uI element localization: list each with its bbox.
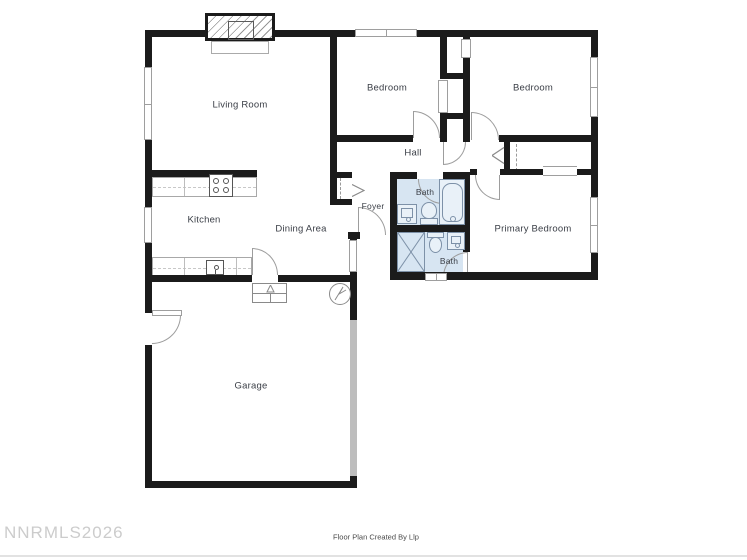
door-swing (152, 315, 181, 344)
room-label-bedroom-right: Bedroom (513, 83, 553, 94)
door-leaf (358, 207, 359, 235)
room-label-hall: Hall (404, 148, 421, 159)
door-leaf (252, 248, 253, 275)
wall (591, 30, 598, 57)
wall (330, 135, 413, 142)
wall (463, 119, 470, 142)
wall (470, 169, 477, 175)
room-label-dining-area: Dining Area (275, 224, 326, 235)
door-leaf (443, 142, 444, 165)
wall (390, 225, 470, 232)
furnace (252, 283, 287, 303)
wall (390, 272, 598, 280)
window (590, 197, 598, 253)
water-heater (329, 283, 351, 305)
wall (278, 275, 357, 282)
toilet-tank (420, 218, 438, 225)
window (349, 240, 357, 272)
window (590, 57, 598, 117)
wall (330, 199, 352, 205)
door-swing (443, 142, 466, 165)
wall (145, 170, 257, 177)
room-label-garage: Garage (235, 381, 268, 392)
chevron-left-icon (492, 147, 505, 164)
window (425, 273, 447, 281)
shower (397, 232, 425, 272)
wall (330, 30, 337, 205)
door-leaf (471, 112, 472, 140)
wall (417, 30, 598, 37)
wall (330, 172, 352, 178)
window (355, 29, 417, 37)
wall (145, 481, 357, 488)
wall (440, 37, 447, 73)
closet-door (461, 39, 471, 58)
door-swing (252, 248, 278, 275)
room-label-foyer: Foyer (362, 201, 385, 211)
bathtub (439, 179, 465, 225)
wall (145, 345, 152, 488)
closet-door (438, 80, 448, 113)
door-swing (475, 175, 500, 200)
fireplace-hearth (211, 41, 269, 54)
closet-bifold-line (340, 178, 341, 199)
door-swing (413, 111, 440, 138)
wall (499, 135, 598, 142)
wall (390, 172, 417, 179)
wall (145, 30, 152, 67)
room-label-kitchen: Kitchen (187, 215, 220, 226)
chevron-right-icon (352, 184, 365, 197)
kitchen-sink (206, 260, 224, 275)
wall (350, 282, 357, 320)
window (144, 67, 152, 140)
door-leaf (499, 175, 500, 200)
sliding-door (543, 166, 577, 176)
wall (463, 79, 470, 113)
door-swing (358, 207, 386, 235)
wall (390, 172, 397, 272)
toilet (421, 202, 437, 219)
closet-bifold-line (516, 144, 517, 171)
wall (591, 117, 598, 197)
wall (350, 232, 357, 240)
window (144, 207, 152, 243)
vanity-sink (447, 232, 465, 250)
bottom-divider (0, 555, 747, 557)
room-label-primary-bedroom: Primary Bedroom (495, 224, 572, 235)
kitchen-counter (152, 177, 257, 197)
door-swing (471, 112, 499, 140)
room-label-bath-bottom: Bath (440, 256, 458, 266)
room-label-bedroom-left: Bedroom (367, 83, 407, 94)
wall (443, 172, 470, 179)
wall (145, 275, 252, 282)
wall (350, 272, 357, 282)
room-label-living-room: Living Room (212, 100, 267, 111)
door-leaf (152, 310, 182, 316)
toilet (429, 237, 442, 253)
stove (209, 174, 233, 197)
watermark: NNRMLS2026 (4, 523, 124, 543)
room-label-bath-top: Bath (416, 187, 434, 197)
floor-plan: Living Room Bedroom Bedroom Hall Kitchen… (0, 0, 747, 560)
wall (145, 282, 152, 313)
fireplace-firebox (228, 21, 254, 40)
wall (440, 119, 447, 142)
garage-door (350, 320, 357, 476)
wall (350, 476, 357, 488)
credit-text: Floor Plan Created By Llp (333, 533, 419, 542)
wall (463, 57, 470, 73)
door-leaf (413, 111, 414, 138)
vanity-sink (397, 204, 417, 224)
